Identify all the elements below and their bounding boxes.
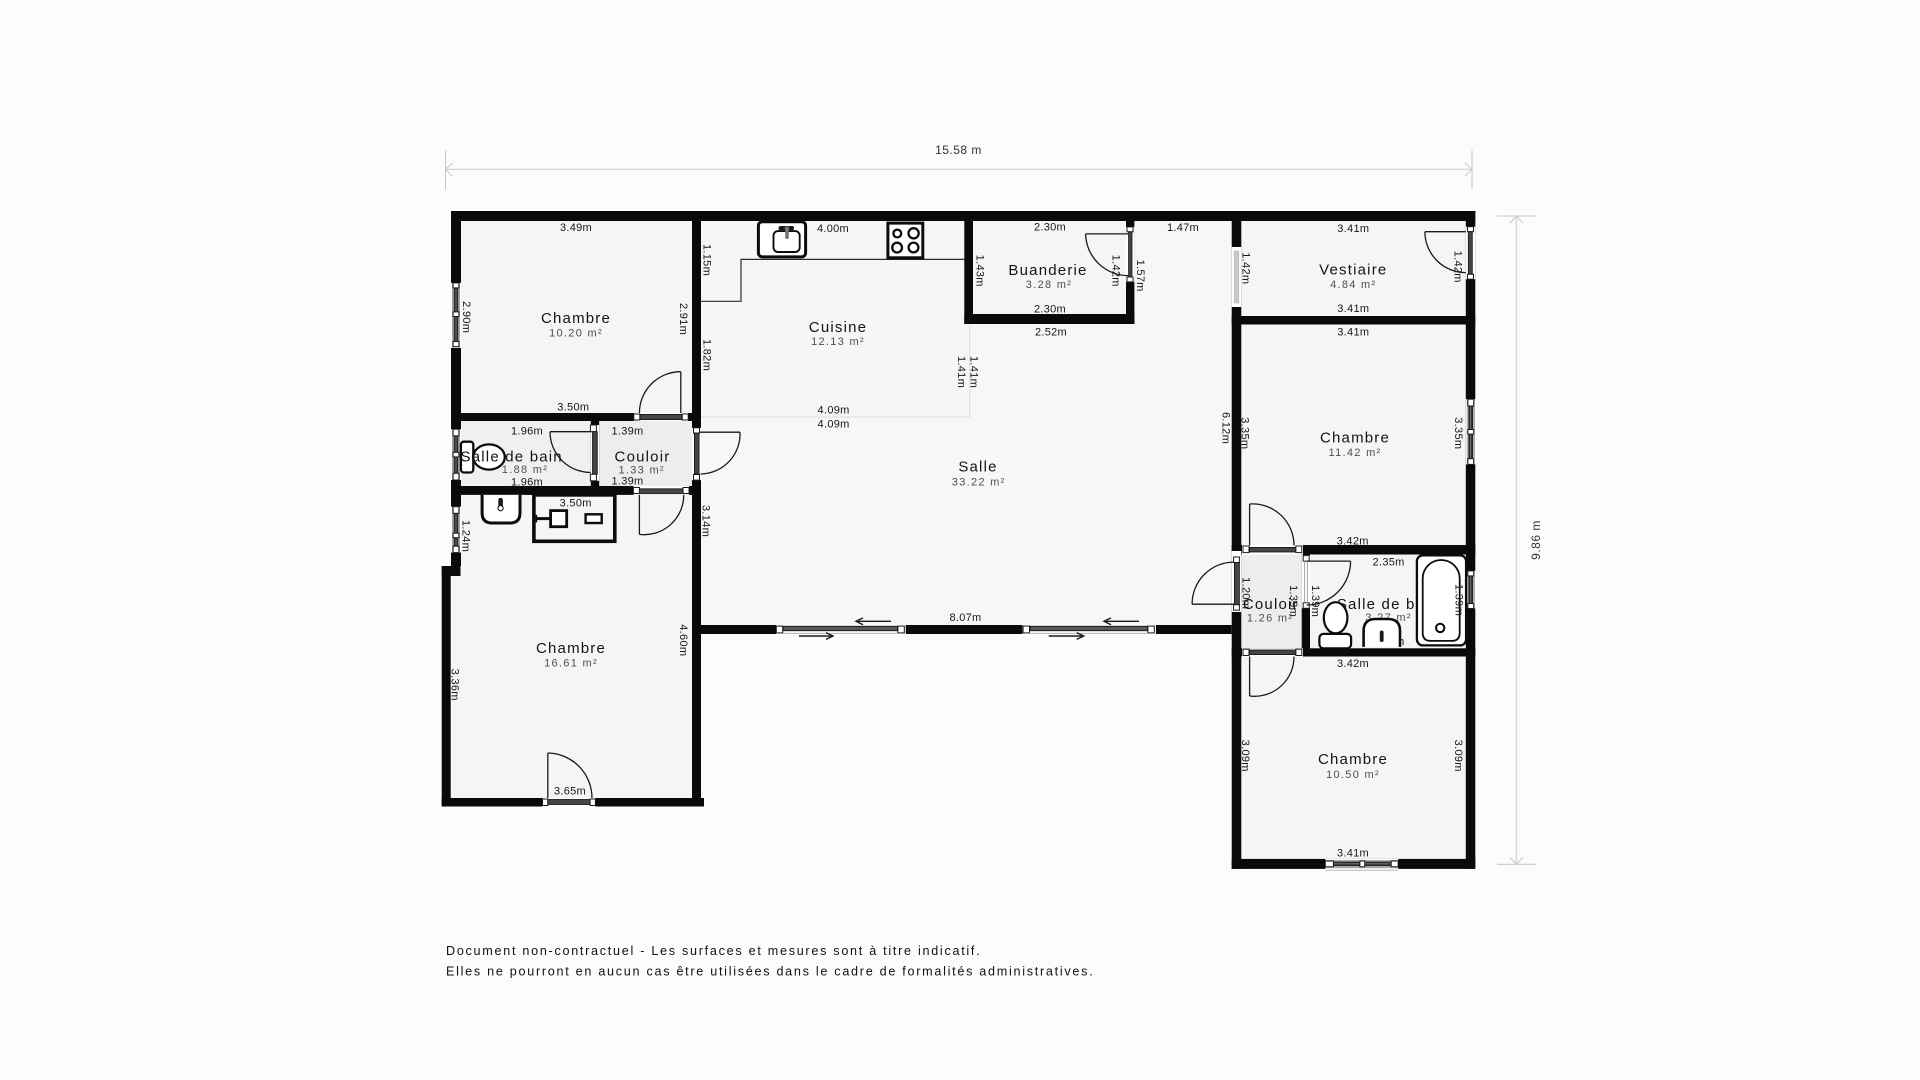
- svg-text:Vestiaire: Vestiaire: [1319, 261, 1387, 278]
- svg-text:11.42 m²: 11.42 m²: [1329, 447, 1382, 459]
- svg-text:3.35m: 3.35m: [1239, 417, 1251, 449]
- svg-text:3.35m: 3.35m: [1452, 417, 1464, 449]
- svg-text:8.07m: 8.07m: [949, 612, 981, 624]
- svg-text:4.09m: 4.09m: [818, 418, 850, 430]
- svg-text:1.39m: 1.39m: [611, 426, 643, 438]
- svg-text:3.09m: 3.09m: [1239, 740, 1251, 772]
- svg-text:3.50m: 3.50m: [557, 401, 589, 413]
- svg-text:4.09m: 4.09m: [818, 405, 850, 417]
- svg-text:1.88 m²: 1.88 m²: [502, 464, 548, 476]
- svg-text:1.39m: 1.39m: [1309, 585, 1321, 617]
- svg-text:3.42m: 3.42m: [1337, 658, 1369, 670]
- svg-text:3.41m: 3.41m: [1337, 223, 1369, 235]
- svg-text:Elles ne pourront en aucun cas: Elles ne pourront en aucun cas être util…: [446, 964, 1094, 978]
- svg-text:Salle: Salle: [958, 459, 997, 476]
- svg-text:Chambre: Chambre: [541, 310, 611, 327]
- svg-text:Cuisine: Cuisine: [809, 319, 867, 336]
- svg-text:2.30m: 2.30m: [1034, 304, 1066, 316]
- svg-text:1.15m: 1.15m: [701, 244, 713, 276]
- svg-text:3.42m: 3.42m: [1337, 535, 1369, 547]
- svg-text:2.30m: 2.30m: [1034, 222, 1066, 234]
- svg-text:15.58 m: 15.58 m: [935, 143, 982, 157]
- svg-text:2.91m: 2.91m: [677, 303, 689, 335]
- svg-text:1.96m: 1.96m: [511, 476, 543, 488]
- svg-text:Salle de bain: Salle de bain: [461, 448, 563, 465]
- svg-text:1.57m: 1.57m: [1134, 260, 1146, 292]
- svg-text:Document non-contractuel - Les: Document non-contractuel - Les surfaces …: [446, 944, 981, 958]
- svg-text:3.65m: 3.65m: [554, 786, 586, 798]
- svg-text:2.35m: 2.35m: [1373, 557, 1405, 569]
- svg-text:Chambre: Chambre: [1318, 751, 1388, 768]
- svg-text:3.50m: 3.50m: [560, 498, 592, 510]
- svg-text:1.41m: 1.41m: [955, 356, 967, 388]
- svg-text:Buanderie: Buanderie: [1008, 262, 1087, 279]
- svg-text:1.39m: 1.39m: [1287, 585, 1299, 617]
- svg-text:1.39m: 1.39m: [1453, 584, 1465, 616]
- svg-text:1.47m: 1.47m: [1167, 222, 1199, 234]
- svg-text:10.20 m²: 10.20 m²: [549, 328, 603, 340]
- svg-text:4.00m: 4.00m: [817, 223, 849, 235]
- svg-text:3.28 m²: 3.28 m²: [1026, 279, 1072, 291]
- svg-text:1.20m: 1.20m: [1239, 577, 1251, 609]
- svg-text:1.42m: 1.42m: [1110, 255, 1122, 287]
- svg-text:1.96m: 1.96m: [511, 426, 543, 438]
- svg-text:2.52m: 2.52m: [1035, 327, 1067, 339]
- svg-text:16.61 m²: 16.61 m²: [544, 658, 598, 670]
- svg-text:4.60m: 4.60m: [677, 624, 689, 656]
- svg-text:10.50 m²: 10.50 m²: [1326, 769, 1380, 781]
- svg-text:4.84 m²: 4.84 m²: [1330, 279, 1376, 291]
- svg-text:3.14m: 3.14m: [699, 505, 711, 537]
- svg-text:3.09m: 3.09m: [1452, 740, 1464, 772]
- svg-text:1.82m: 1.82m: [701, 339, 713, 371]
- svg-text:2.90m: 2.90m: [460, 301, 472, 333]
- svg-text:1.42m: 1.42m: [1239, 252, 1251, 284]
- svg-text:Chambre: Chambre: [1320, 429, 1390, 446]
- svg-text:3.36m: 3.36m: [448, 669, 460, 701]
- svg-text:Chambre: Chambre: [536, 640, 606, 657]
- svg-text:33.22 m²: 33.22 m²: [952, 476, 1006, 488]
- svg-text:3.41m: 3.41m: [1337, 326, 1369, 338]
- svg-text:6.12m: 6.12m: [1220, 412, 1232, 444]
- svg-text:12.13 m²: 12.13 m²: [811, 336, 865, 348]
- svg-text:1.43m: 1.43m: [973, 255, 985, 287]
- svg-text:3.49m: 3.49m: [560, 222, 592, 234]
- svg-text:Couloir: Couloir: [615, 448, 671, 465]
- svg-text:1.26 m²: 1.26 m²: [1247, 612, 1293, 624]
- svg-text:1.24m: 1.24m: [460, 520, 472, 552]
- svg-text:1.41m: 1.41m: [968, 356, 980, 388]
- svg-text:1.39m: 1.39m: [611, 476, 643, 488]
- svg-text:9.86 m: 9.86 m: [1529, 520, 1543, 560]
- svg-text:1.42m: 1.42m: [1451, 251, 1463, 283]
- svg-text:3.41m: 3.41m: [1337, 303, 1369, 315]
- svg-text:3.41m: 3.41m: [1337, 848, 1369, 860]
